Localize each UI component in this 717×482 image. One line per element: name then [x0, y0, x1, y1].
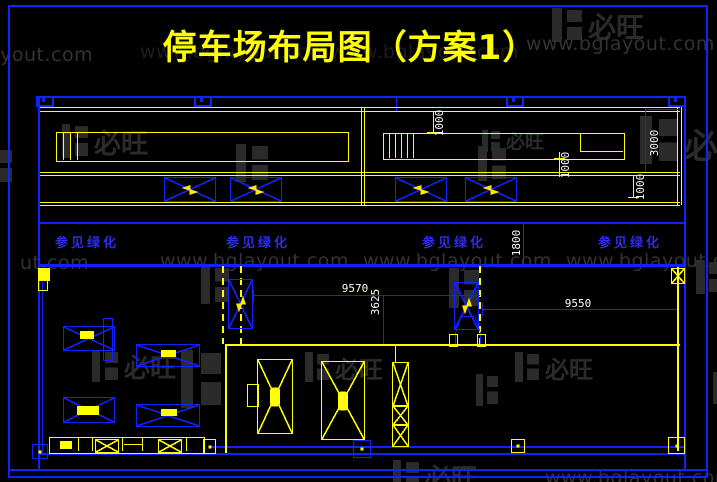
site-border-top: [38, 96, 686, 98]
door-jamb: [477, 334, 486, 347]
road-edge: [38, 264, 686, 267]
parking-stall: [230, 177, 282, 202]
column-marker: [203, 439, 216, 454]
lane-line: [40, 205, 680, 206]
dim-line: [383, 296, 384, 344]
wall-line: [38, 267, 39, 455]
column-bracket: [194, 96, 212, 107]
hatch-line: [401, 133, 402, 158]
dim-text-3000: 3000: [649, 128, 661, 158]
road-edge: [38, 222, 686, 224]
truss-cell: [392, 362, 409, 407]
dim-line: [523, 224, 524, 264]
car-arrow-icon: [462, 298, 472, 315]
hatch-line: [389, 133, 390, 158]
right-wall: [677, 267, 679, 451]
inner-wall-line: [580, 133, 581, 152]
car-block: [77, 406, 99, 415]
drawing-title: 停车场布局图（方案1）: [148, 20, 552, 69]
hatch-line: [413, 133, 414, 158]
landscaping-note: 参见绿化: [598, 237, 662, 251]
hatch-line: [395, 133, 396, 158]
bike-rack-cell: [95, 439, 119, 453]
hatch-line: [63, 132, 64, 160]
cad-canvas: ayout.com www.bglayout.com www.bglayout.…: [0, 0, 717, 482]
hatch-line: [407, 133, 408, 158]
dim-tick: [482, 303, 483, 316]
sheet-bottom-line: [10, 469, 707, 471]
landscaping-note: 参见绿化: [422, 237, 486, 251]
bike-rack-line: [92, 438, 93, 451]
bike-rack-block: [60, 441, 72, 449]
column-marker: [671, 268, 685, 284]
column-marker: [668, 437, 685, 454]
dim-text-1800: 1800: [511, 228, 523, 258]
lane-line: [40, 172, 680, 173]
bike-rack-line: [142, 438, 143, 451]
column-bracket: [506, 96, 524, 107]
bike-rack-line: [122, 438, 123, 451]
wall-line: [42, 267, 43, 455]
bike-rack-line: [186, 438, 187, 451]
column-bracket: [36, 96, 54, 107]
truss-cell: [392, 424, 409, 447]
car-icon: [338, 391, 348, 410]
dim-text-3625: 3625: [370, 287, 382, 317]
car-arrow-icon: [248, 185, 265, 195]
wall-line: [40, 107, 680, 108]
divider-wall: [361, 107, 362, 205]
parking-stall: [164, 177, 216, 202]
access-box: [353, 440, 371, 458]
column-marker: [38, 268, 50, 281]
dim-text-1000: 1000: [434, 108, 446, 138]
car-arrow-icon: [413, 185, 430, 195]
building-strip: [383, 133, 625, 160]
grid-tick: [396, 96, 397, 111]
bike-rack-line: [124, 444, 142, 445]
parking-stall-vertical: [228, 279, 253, 329]
car-arrow-icon: [236, 296, 246, 313]
hatch-line: [70, 132, 71, 160]
bay-side-box: [247, 384, 259, 407]
dim-text-9550: 9550: [558, 298, 598, 310]
hatch-line: [77, 132, 78, 160]
equipment-bay: [257, 359, 293, 434]
truss-cell: [392, 405, 409, 426]
parking-stall: [465, 177, 517, 202]
car-block: [161, 409, 177, 416]
corner-box: [32, 444, 48, 459]
bike-rack-cell: [158, 439, 182, 453]
wall-line: [40, 111, 680, 112]
landscaping-note: 参见绿化: [55, 237, 119, 251]
divider-wall: [364, 107, 365, 205]
right-wall: [681, 107, 682, 205]
dim-tick: [253, 289, 254, 302]
inner-wall-line: [580, 151, 623, 152]
dim-text-1000: 1000: [635, 172, 647, 202]
dim-line: [645, 109, 646, 173]
dim-tick: [645, 109, 680, 110]
dim-line: [253, 295, 480, 296]
column-marker-line: [38, 290, 48, 291]
door-jamb: [449, 334, 458, 347]
car-block: [80, 331, 94, 339]
drawing-layer: 1000 1000 1000 3000 参见绿化 参见绿化 参见绿化: [0, 0, 717, 482]
column-bracket: [668, 96, 686, 107]
lane-line: [40, 175, 680, 176]
car-arrow-icon: [182, 185, 199, 195]
parking-stall: [395, 177, 447, 202]
building-strip: [56, 132, 349, 162]
site-border-bottom-inner: [210, 446, 686, 448]
car-arrow-icon: [483, 185, 500, 195]
door-swing: [460, 316, 474, 317]
truss-link: [395, 346, 396, 362]
right-wall: [677, 107, 678, 205]
car-icon: [270, 387, 280, 406]
pillar: [103, 318, 113, 361]
column-marker: [511, 439, 525, 453]
car-block: [161, 350, 176, 357]
landscaping-note: 参见绿化: [226, 237, 290, 251]
room-wall-left: [225, 344, 227, 453]
bike-rack-line: [78, 438, 79, 451]
equipment-bay: [321, 361, 365, 440]
grid-line-dashed: [222, 266, 224, 344]
lane-line: [40, 202, 680, 203]
